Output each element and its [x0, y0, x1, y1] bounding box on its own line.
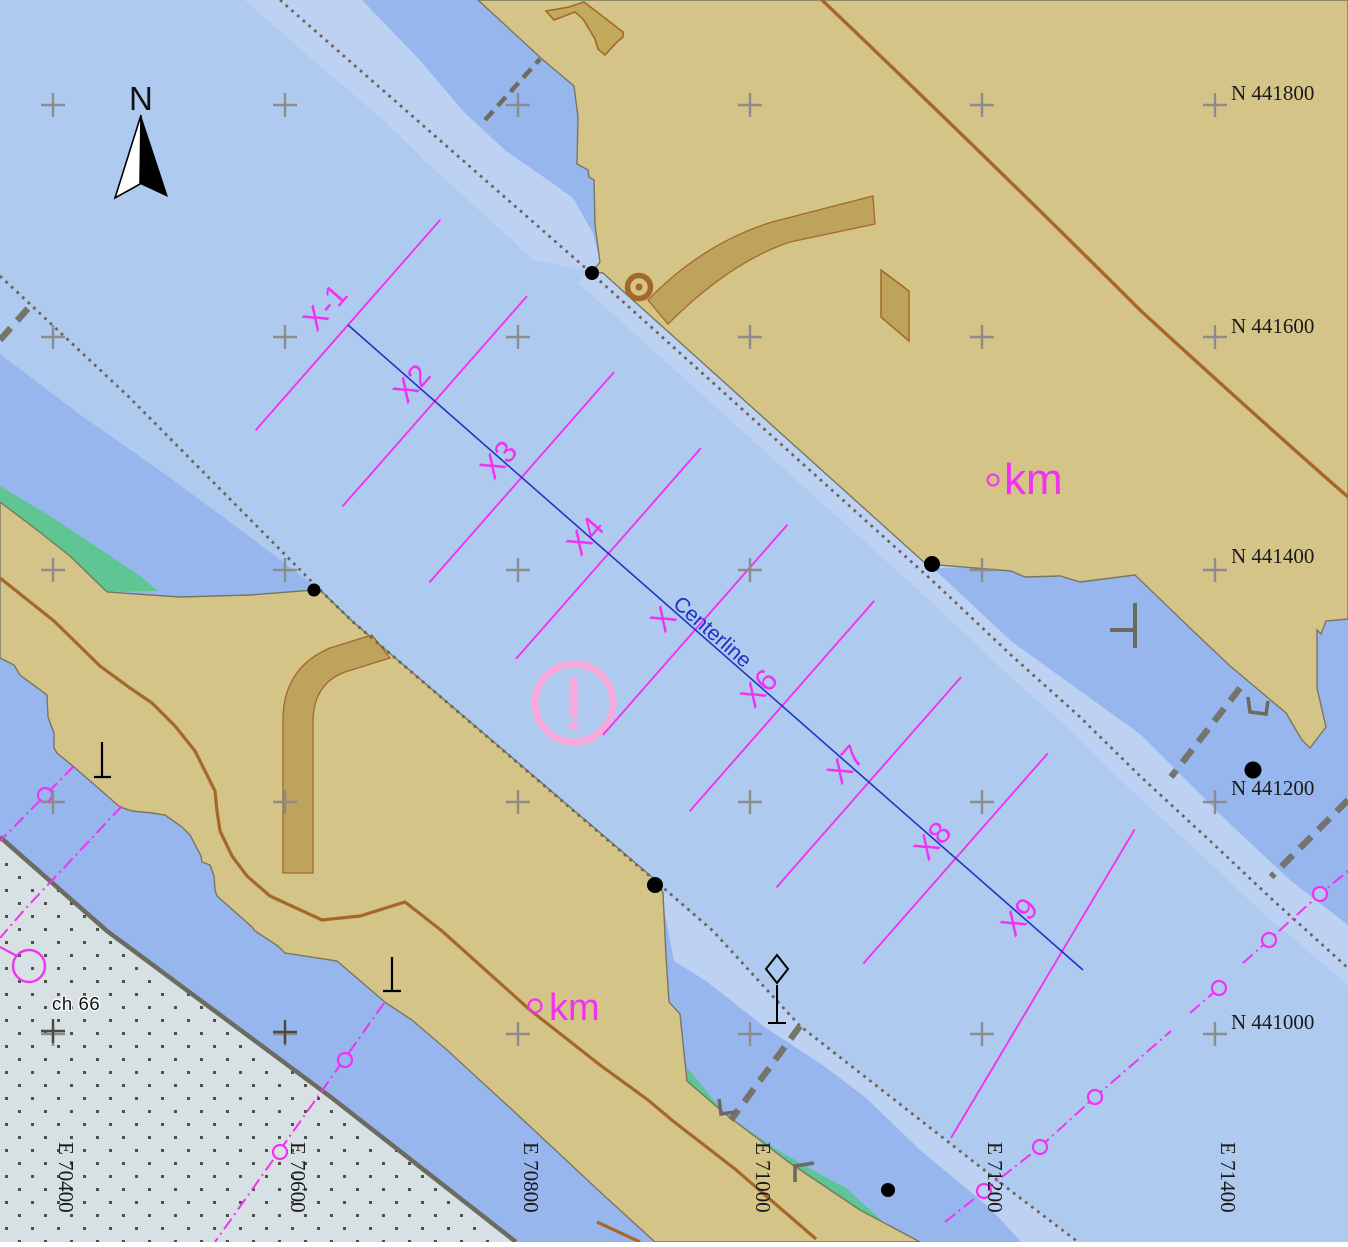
svg-text:km: km — [1004, 455, 1063, 504]
svg-text:N 441000: N 441000 — [1231, 1010, 1314, 1034]
svg-text:E 70400: E 70400 — [54, 1142, 78, 1213]
svg-text:E 70800: E 70800 — [519, 1142, 543, 1213]
svg-text:km: km — [549, 987, 600, 1029]
svg-text:N 441600: N 441600 — [1231, 314, 1314, 338]
svg-text:N 441400: N 441400 — [1231, 544, 1314, 568]
svg-text:E 70600: E 70600 — [286, 1142, 310, 1213]
svg-text:N: N — [129, 80, 153, 117]
svg-text:N 441200: N 441200 — [1231, 776, 1314, 800]
svg-text:E 71200: E 71200 — [983, 1142, 1007, 1213]
svg-text:N 441800: N 441800 — [1231, 81, 1314, 105]
svg-text:E 71000: E 71000 — [751, 1142, 775, 1213]
svg-text:E 71400: E 71400 — [1216, 1142, 1240, 1213]
svg-text:ch 66: ch 66 — [52, 993, 100, 1014]
